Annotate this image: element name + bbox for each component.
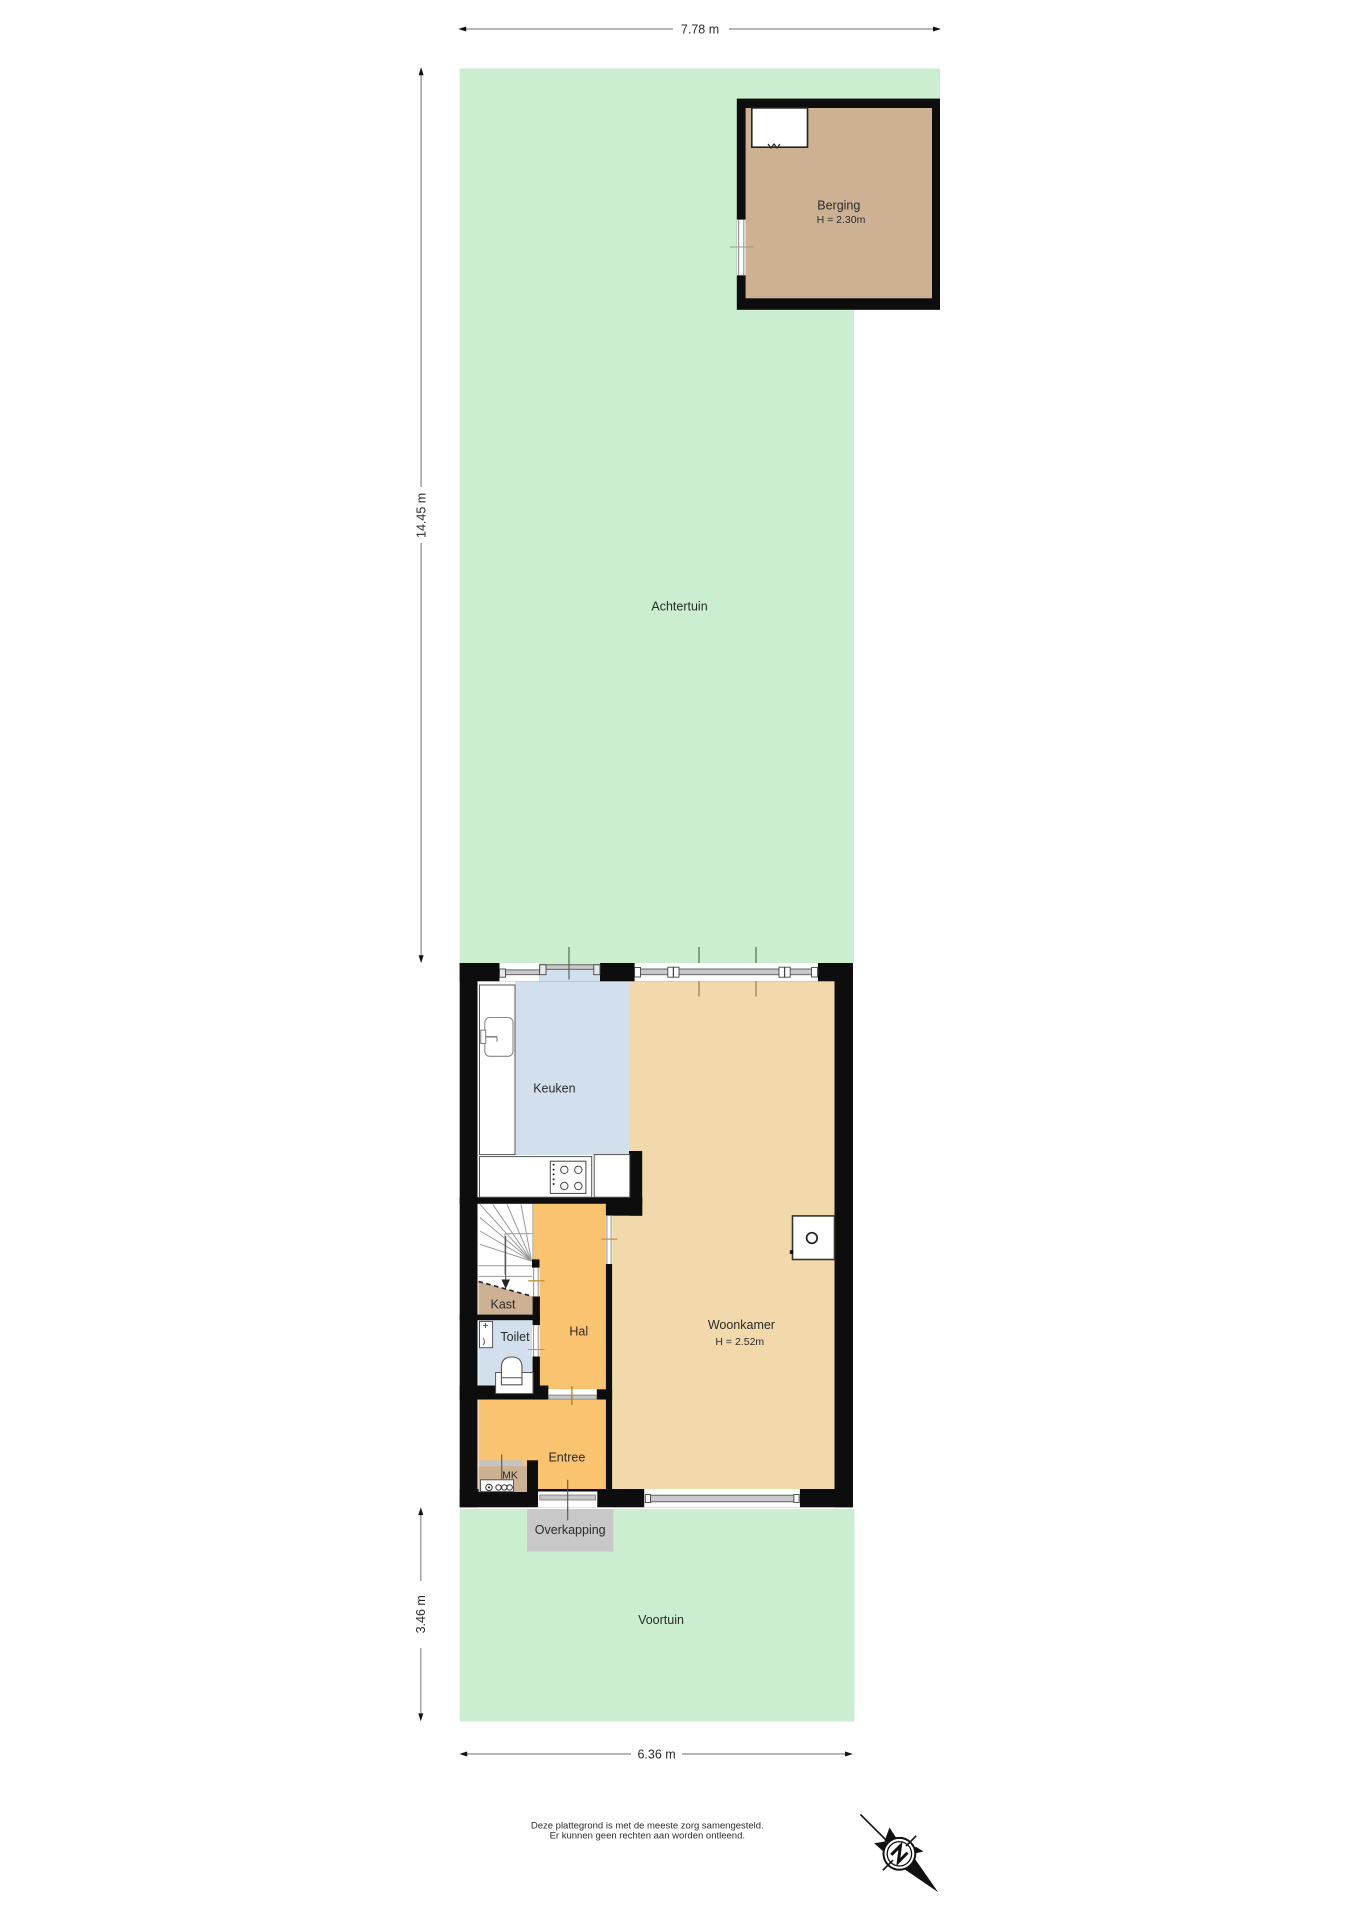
svg-text:Woonkamer: Woonkamer: [708, 1318, 775, 1332]
svg-text:Voortuin: Voortuin: [638, 1613, 684, 1627]
svg-text:Keuken: Keuken: [533, 1081, 575, 1095]
svg-text:3.46 m: 3.46 m: [414, 1595, 428, 1633]
svg-text:6.36 m: 6.36 m: [637, 1747, 675, 1761]
svg-text:H = 2.52m: H = 2.52m: [715, 1336, 764, 1348]
svg-text:Overkapping: Overkapping: [535, 1523, 606, 1537]
svg-text:7.78 m: 7.78 m: [681, 22, 719, 36]
svg-text:Hal: Hal: [569, 1324, 588, 1338]
svg-text:Achtertuin: Achtertuin: [651, 599, 707, 613]
svg-text:H = 2.30m: H = 2.30m: [817, 214, 866, 226]
svg-text:MK: MK: [502, 1469, 518, 1481]
svg-text:Entree: Entree: [548, 1451, 585, 1465]
svg-text:Er kunnen geen rechten aan wor: Er kunnen geen rechten aan worden ontlee…: [550, 1831, 745, 1842]
svg-text:Kast: Kast: [490, 1297, 516, 1311]
svg-text:14.45 m: 14.45 m: [414, 493, 428, 538]
svg-text:Toilet: Toilet: [500, 1330, 530, 1344]
svg-text:Berging: Berging: [817, 198, 860, 212]
